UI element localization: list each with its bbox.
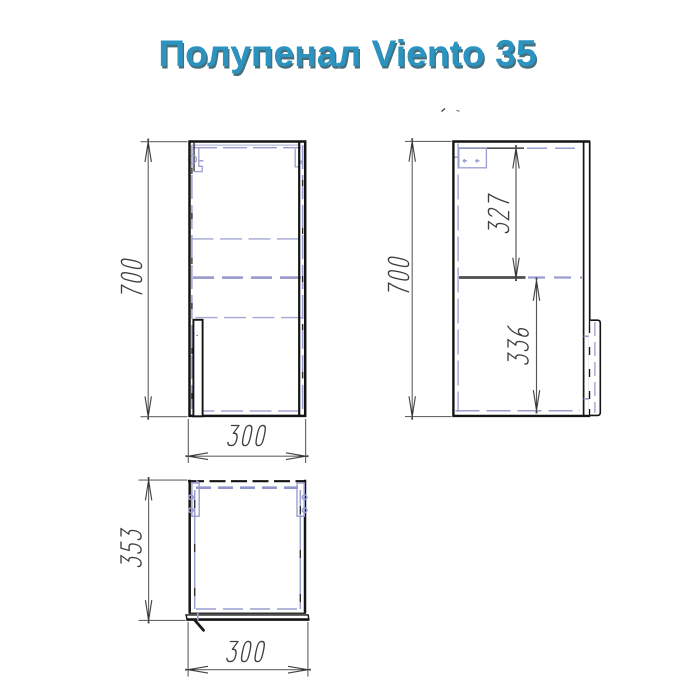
svg-text:Полупенал Viento 35: Полупенал Viento 35 — [158, 32, 536, 74]
